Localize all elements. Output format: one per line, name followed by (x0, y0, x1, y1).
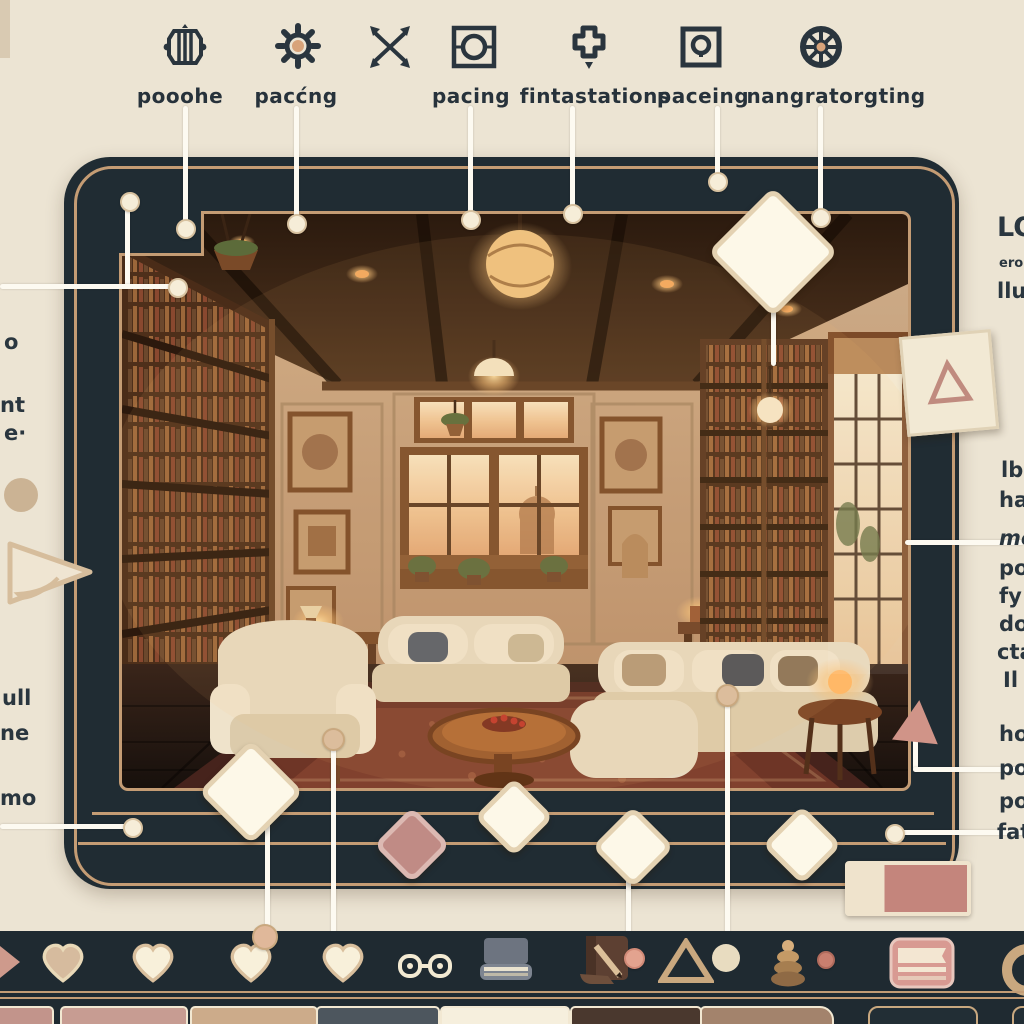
right-text-fragment: Il (1003, 668, 1018, 692)
connector-dot (176, 219, 196, 239)
connector-dot (287, 214, 307, 234)
heart-icon[interactable] (38, 938, 88, 986)
page-flip-icon[interactable] (0, 536, 100, 608)
connector-line (183, 106, 188, 227)
connector-line (0, 824, 132, 829)
triangle-card[interactable] (899, 329, 999, 437)
triangle-icon[interactable] (658, 938, 714, 984)
toolbar-label: pooohe (137, 84, 223, 108)
app-canvas: pooohe pacćng pacing fintastations pacei… (0, 0, 1024, 1024)
right-text-fragment: po (999, 789, 1024, 813)
right-text-fragment: ho (999, 722, 1024, 746)
lantern-icon[interactable] (160, 22, 210, 72)
circle-icon[interactable] (712, 944, 740, 972)
connector-dot (123, 818, 143, 838)
connector-dot (563, 204, 583, 224)
toolbar-label: pacćng (254, 84, 337, 108)
right-text-fragment: po (999, 556, 1024, 580)
connector-line (818, 106, 823, 216)
connector-dot (120, 192, 140, 212)
right-text-fragment: me (999, 526, 1024, 550)
left-text-fragment: ne (0, 721, 29, 745)
connector-dot (708, 172, 728, 192)
color-swatch[interactable] (60, 1006, 188, 1024)
toolbar-label: nangratorgting (746, 84, 925, 108)
right-text-fragment: llu (997, 279, 1024, 303)
connector-line (468, 106, 473, 218)
heart-icon[interactable] (318, 938, 368, 986)
right-text-fragment: do (999, 612, 1024, 636)
right-text-fragment: fy (999, 584, 1022, 608)
right-heading: LO (997, 212, 1024, 243)
right-text-fragment: cta (997, 640, 1024, 664)
pink-book-icon[interactable] (888, 936, 958, 990)
pink-triangle-marker (892, 698, 942, 746)
color-swatch[interactable] (1012, 1006, 1024, 1024)
color-swatch[interactable] (570, 1006, 702, 1024)
heart-icon[interactable] (128, 938, 178, 986)
connector-line (331, 740, 336, 942)
connector-line (0, 284, 178, 289)
toolbar-dot (624, 948, 645, 969)
eraser-swatch[interactable] (845, 861, 971, 916)
crossed-arrows-icon[interactable] (366, 24, 414, 70)
connector-dot (322, 728, 345, 751)
connector-dot (461, 210, 481, 230)
right-text-fragment: fat (997, 820, 1024, 844)
left-text-fragment: ull (2, 686, 31, 710)
connector-line (125, 200, 130, 288)
connector-dot (811, 208, 831, 228)
connector-dot (168, 278, 188, 298)
color-swatch[interactable] (0, 1006, 54, 1024)
cross-badge-icon[interactable] (565, 22, 613, 72)
left-text-fragment: mo (0, 786, 36, 810)
color-swatch[interactable] (440, 1006, 570, 1024)
color-swatch[interactable] (700, 1006, 834, 1024)
keyhole-square-icon[interactable] (678, 24, 724, 70)
corner-strip (0, 0, 10, 58)
right-text-fragment: ha (999, 488, 1024, 512)
toolbar-divider-line (0, 997, 1024, 999)
toolbar-label: pacing (432, 84, 510, 108)
zen-stones-icon[interactable] (764, 938, 812, 988)
tan-circle-marker (4, 478, 38, 512)
toolbar-label: paceing (657, 84, 749, 108)
right-text-fragment: lb (1001, 458, 1023, 482)
color-swatch[interactable] (190, 1006, 318, 1024)
framed-circle-icon[interactable] (450, 24, 498, 70)
right-subheading: ero (999, 256, 1023, 271)
toolbar-label: fintastations (520, 84, 671, 108)
left-text-fragment: e· (4, 421, 26, 445)
toolbar-divider-line (0, 991, 1024, 993)
connector-line (570, 106, 575, 212)
left-text-fragment: nt (0, 393, 25, 417)
color-swatch[interactable] (868, 1006, 978, 1024)
ship-wheel-icon[interactable] (796, 22, 846, 72)
connector-dot (885, 824, 905, 844)
connector-line (715, 106, 720, 180)
gear-icon[interactable] (274, 22, 322, 70)
color-swatch[interactable] (316, 1006, 440, 1024)
toolbar-dot (817, 951, 835, 969)
connector-dot (716, 684, 739, 707)
triangle-outline-icon (902, 332, 996, 433)
book-icon[interactable] (478, 934, 542, 988)
left-arrow-marker (0, 946, 20, 978)
heart-badge-dot (252, 924, 278, 950)
right-text-fragment: po (999, 756, 1024, 780)
connector-line (294, 106, 299, 222)
connector-line (725, 694, 730, 950)
game-controller-icon[interactable] (398, 950, 452, 982)
library-scene-illustration (122, 214, 908, 788)
left-text-fragment: o (4, 330, 18, 354)
